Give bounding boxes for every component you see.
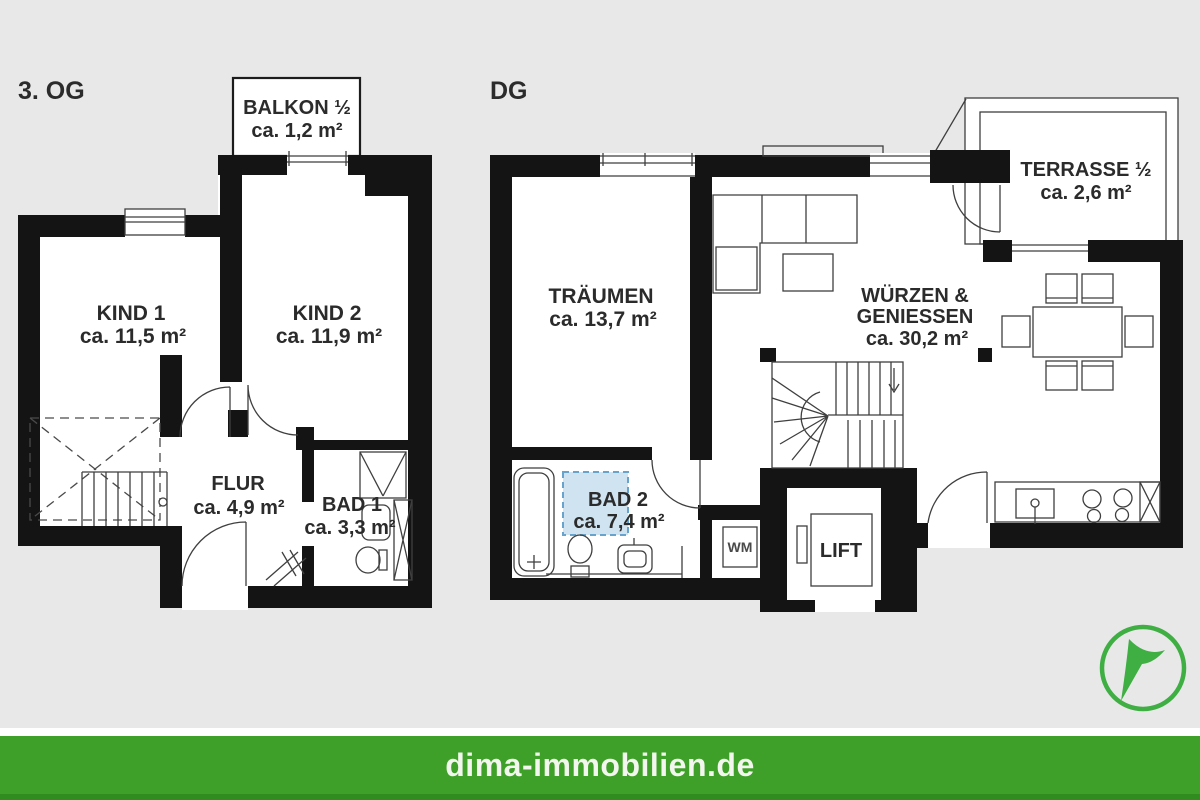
room-area-balkon: ca. 1,2 m² <box>251 120 343 142</box>
window-kind1 <box>125 209 185 235</box>
room-label-kind2: KIND 2 <box>293 302 362 325</box>
room-area-kind1: ca. 11,5 m² <box>80 325 186 348</box>
footer: dima-immobilien.de <box>0 728 1200 800</box>
wm-label: WM <box>728 539 753 555</box>
room-label-traeumen: TRÄUMEN <box>549 285 654 308</box>
floor-plan-og3: 3. OG <box>10 77 432 612</box>
room-area-flur: ca. 4,9 m² <box>193 497 285 519</box>
footer-bar: dima-immobilien.de <box>0 736 1200 794</box>
coffee-table-icon <box>783 254 833 291</box>
kitchen-counter <box>995 482 1160 524</box>
room-label-bad2: BAD 2 <box>588 489 648 511</box>
room-area-kind2: ca. 11,9 m² <box>276 325 382 348</box>
room-area-bad2: ca. 7,4 m² <box>573 511 665 533</box>
brand-logo <box>1102 627 1184 709</box>
room-label-kind1: KIND 1 <box>97 302 166 325</box>
terrace-window <box>1012 240 1088 262</box>
room-area-traeumen: ca. 13,7 m² <box>549 308 656 331</box>
room-label-wuerzen-2: GENIESSEN <box>857 306 974 328</box>
floorplans-canvas: 3. OG <box>0 0 1200 800</box>
balcony-door-window <box>287 151 348 174</box>
footer-dark-edge <box>0 794 1200 800</box>
floorplan-page: 3. OG <box>0 0 1200 800</box>
room-label-bad1: BAD 1 <box>322 494 382 516</box>
footer-website: dima-immobilien.de <box>445 747 754 784</box>
room-label-flur: FLUR <box>211 473 265 495</box>
floor-label-og3: 3. OG <box>18 77 85 105</box>
room-label-wuerzen-1: WÜRZEN & <box>861 284 969 307</box>
window-living <box>870 153 930 177</box>
lift-label: LIFT <box>820 540 862 562</box>
washing-machine: WM <box>723 527 757 567</box>
floor-label-dg: DG <box>490 77 528 105</box>
room-label-terrasse: TERRASSE ½ <box>1020 159 1151 181</box>
lift: LIFT <box>760 468 917 612</box>
lift-door-marker <box>797 526 807 563</box>
dormer-outline <box>763 146 883 156</box>
room-area-terrasse: ca. 2,6 m² <box>1040 182 1132 204</box>
window-traeumen <box>600 153 695 177</box>
room-label-balkon: BALKON ½ <box>243 97 351 119</box>
room-area-bad1: ca. 3,3 m² <box>304 517 396 539</box>
footer-white-gap <box>0 728 1200 736</box>
floor-plan-dg: DG <box>490 77 1183 612</box>
logo-sail-icon <box>1121 639 1165 701</box>
room-area-wuerzen: ca. 30,2 m² <box>866 328 969 350</box>
logo-circle-icon <box>1102 627 1184 709</box>
